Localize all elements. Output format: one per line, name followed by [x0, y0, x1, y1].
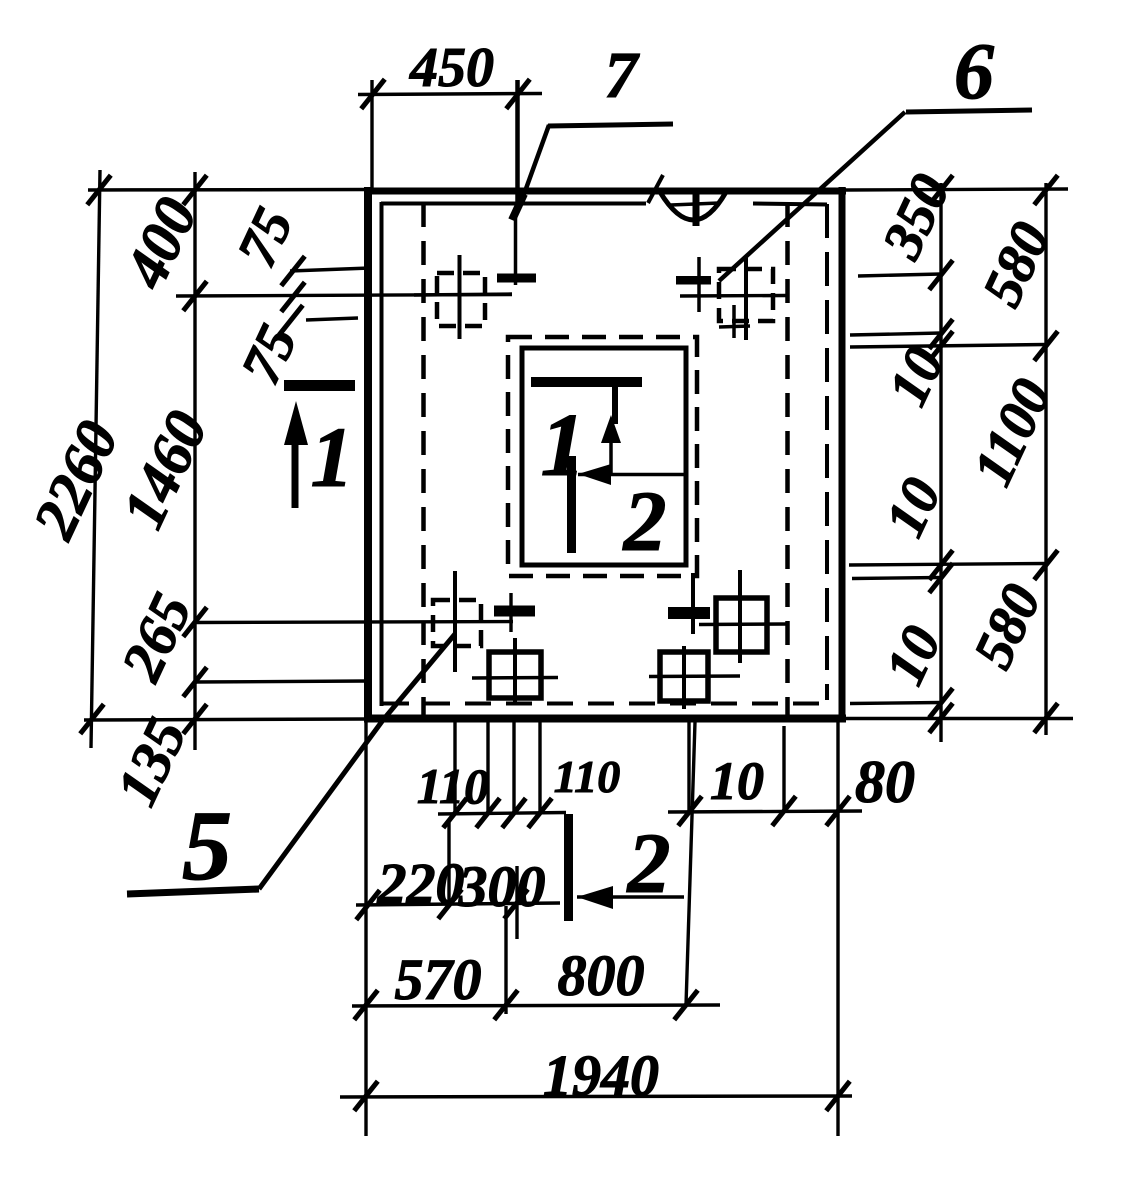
- svg-text:5: 5: [182, 790, 232, 901]
- svg-text:570: 570: [395, 947, 482, 1012]
- svg-text:1: 1: [541, 396, 586, 495]
- svg-text:2: 2: [626, 815, 671, 911]
- svg-text:7: 7: [605, 39, 641, 112]
- svg-text:2: 2: [622, 473, 667, 569]
- svg-text:110: 110: [554, 751, 620, 802]
- svg-text:1: 1: [311, 409, 354, 505]
- svg-text:450: 450: [409, 37, 494, 99]
- svg-text:220: 220: [377, 851, 465, 916]
- svg-text:110: 110: [417, 758, 489, 814]
- svg-text:300: 300: [458, 854, 546, 919]
- svg-text:1940: 1940: [543, 1043, 659, 1108]
- svg-text:6: 6: [954, 28, 994, 116]
- svg-text:800: 800: [558, 943, 645, 1008]
- svg-text:80: 80: [855, 749, 915, 815]
- svg-text:10: 10: [710, 751, 764, 811]
